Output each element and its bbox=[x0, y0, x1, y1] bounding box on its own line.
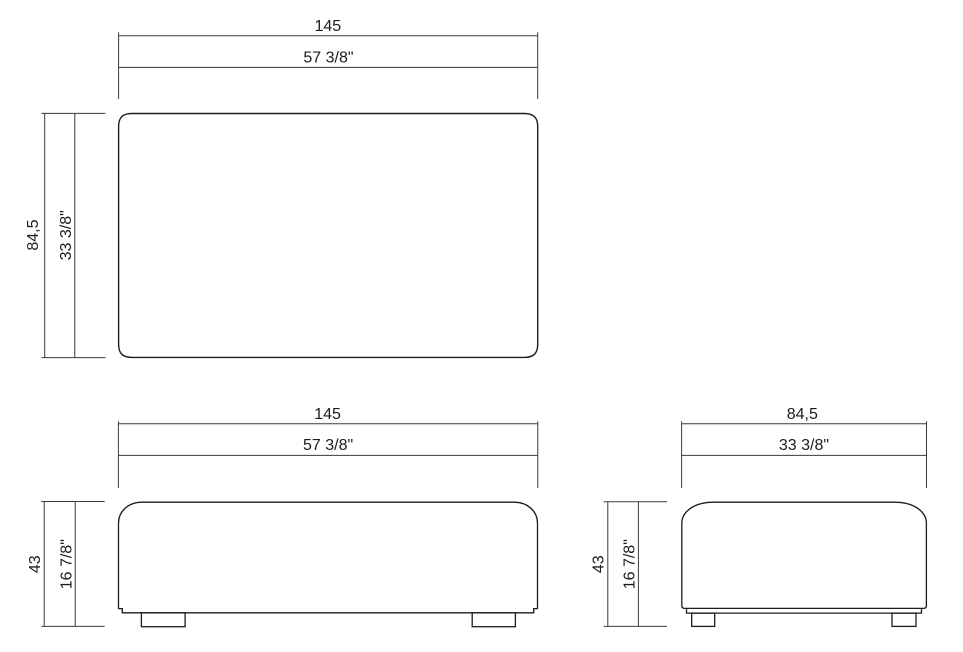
svg-text:43: 43 bbox=[591, 555, 608, 573]
svg-text:16 7/8": 16 7/8" bbox=[621, 539, 638, 589]
svg-text:145: 145 bbox=[314, 18, 341, 35]
svg-text:33 3/8": 33 3/8" bbox=[58, 210, 75, 260]
svg-text:33 3/8": 33 3/8" bbox=[779, 437, 829, 454]
svg-text:57 3/8": 57 3/8" bbox=[303, 50, 353, 67]
svg-text:57 3/8": 57 3/8" bbox=[303, 437, 353, 454]
svg-text:84,5: 84,5 bbox=[25, 219, 42, 250]
svg-text:145: 145 bbox=[314, 406, 341, 423]
svg-text:43: 43 bbox=[27, 555, 44, 573]
svg-text:84,5: 84,5 bbox=[787, 406, 818, 423]
svg-text:16 7/8": 16 7/8" bbox=[58, 539, 75, 589]
